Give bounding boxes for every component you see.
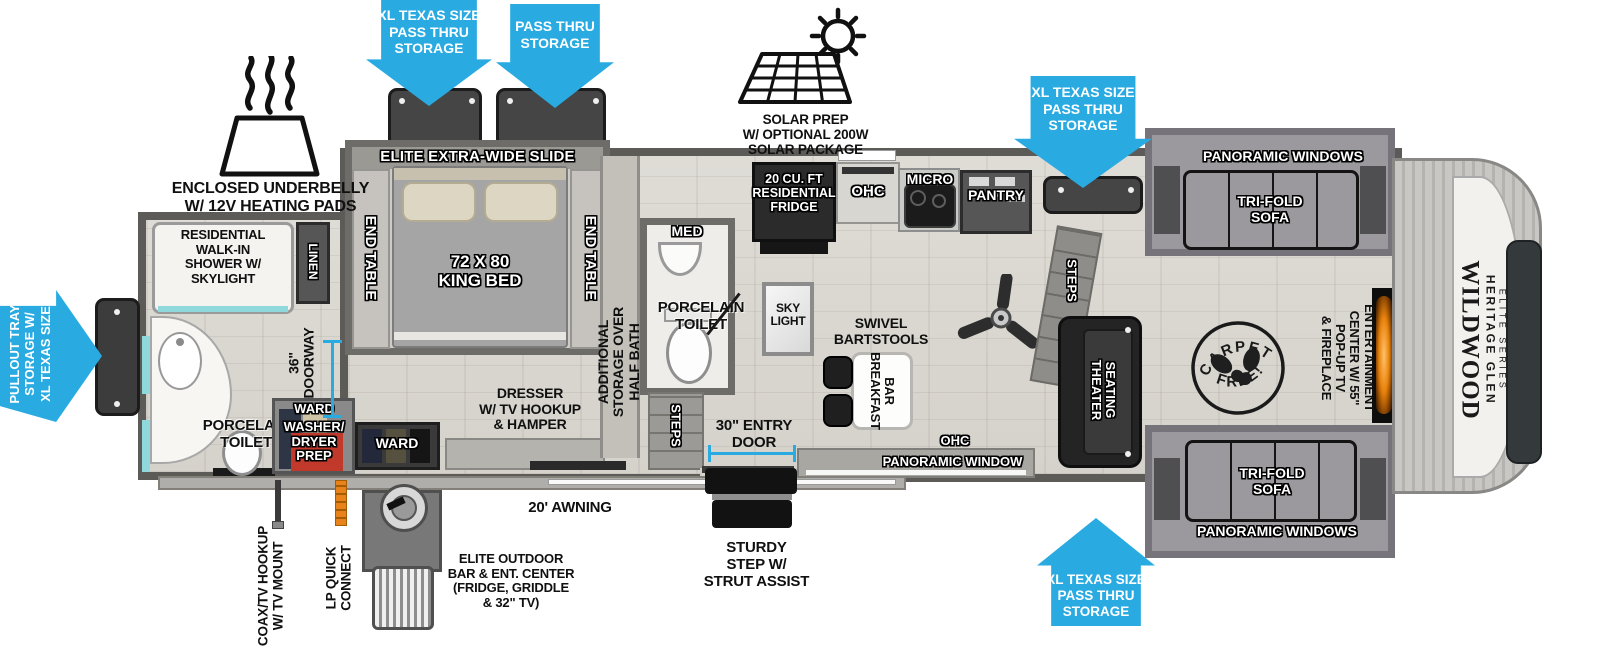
top-right-storage-door bbox=[1043, 176, 1143, 214]
doorway-measure-tick bbox=[323, 340, 342, 343]
logo-brand: WILDWOOD bbox=[1456, 260, 1484, 419]
pillow bbox=[484, 182, 558, 222]
ohc-shelf bbox=[842, 167, 894, 174]
logo-series: HERITAGE GLEN bbox=[1484, 275, 1497, 405]
washer-dryer-label: WASHER/ DRYER PREP bbox=[274, 420, 354, 464]
barstools-label: SWIVEL BARTSTOOLS bbox=[822, 316, 940, 347]
micro-label: MICRO bbox=[896, 172, 964, 188]
doorway-measure-line bbox=[331, 340, 334, 418]
ceiling-fan-icon bbox=[957, 274, 1045, 362]
bottom-ohc-label: OHC bbox=[915, 434, 995, 449]
lp-connector-icon bbox=[335, 480, 347, 526]
linen-label: LINEN bbox=[305, 219, 320, 304]
headboard bbox=[394, 168, 566, 180]
half-bath-steps-label: STEPS bbox=[668, 390, 683, 462]
additional-storage-label: ADDITIONAL STORAGE OVER HALF BATH bbox=[594, 237, 644, 487]
shower-label: RESIDENTIAL WALK-IN SHOWER W/ SKYLIGHT bbox=[156, 228, 290, 286]
lp-label: LP QUICK CONNECT bbox=[324, 531, 356, 626]
entry-measure-line bbox=[708, 452, 796, 455]
king-bed-label: 72 X 80 KING BED bbox=[400, 252, 560, 290]
floorplan-canvas: { "colors": { "arrow_blue": "#29ABE2", "… bbox=[0, 0, 1600, 651]
solar-prep-icon bbox=[732, 6, 877, 108]
heated-underbelly-icon bbox=[212, 56, 327, 178]
screw-dot bbox=[114, 309, 120, 315]
dresser-label: DRESSER W/ TV HOOKUP & HAMPER bbox=[440, 386, 620, 433]
outdoor-bar-label: ELITE OUTDOOR BAR & ENT. CENTER (FRIDGE,… bbox=[432, 552, 590, 610]
living-steps-label: STEPS bbox=[1064, 245, 1079, 317]
entry-measure-tick bbox=[793, 445, 796, 462]
slide-window bbox=[1154, 458, 1180, 520]
half-bath-toilet-label: PORCELAIN TOILET bbox=[646, 300, 756, 334]
skylight-label: SKY LIGHT bbox=[762, 302, 814, 329]
coax-label: COAX/TV HOOKUP W/ TV MOUNT bbox=[256, 519, 288, 654]
coax-cable-icon bbox=[275, 480, 281, 522]
entry-step-bottom bbox=[712, 500, 792, 528]
cap-dark-panel bbox=[1506, 240, 1542, 464]
ohc-label: OHC bbox=[836, 184, 900, 201]
fridge-label: 20 CU. FT RESIDENTIAL FRIDGE bbox=[752, 172, 836, 214]
barstool bbox=[823, 356, 853, 389]
slide-window bbox=[1360, 458, 1386, 520]
fridge-base bbox=[760, 242, 828, 254]
barstool bbox=[823, 394, 853, 427]
theater-seating-label: THEATERSEATING bbox=[1088, 328, 1118, 452]
sturdy-step-label: STURDY STEP W/ STRUT ASSIST bbox=[694, 540, 819, 590]
rear-storage-door bbox=[95, 298, 140, 416]
tri-fold-sofa-bottom-label: TRI-FOLD SOFA bbox=[1212, 466, 1332, 497]
doorway-measure-tick bbox=[323, 415, 342, 418]
entry-measure-tick bbox=[708, 445, 711, 462]
pillow bbox=[402, 182, 476, 222]
faucet-icon bbox=[176, 338, 184, 346]
bottom-window-glass bbox=[806, 470, 1026, 475]
slide-header-label: ELITE EXTRA-WIDE SLIDE bbox=[352, 149, 603, 166]
awning-label: 20' AWNING bbox=[510, 500, 630, 517]
slide-window bbox=[1360, 166, 1386, 234]
slide-window bbox=[1154, 166, 1180, 234]
towel-accent bbox=[142, 420, 150, 472]
outdoor-fridge-grill bbox=[372, 566, 434, 630]
arrow-left-storage-label: XL TEXAS SIZESTORAGE W/PULLOUT TRAY bbox=[6, 293, 54, 415]
logo-trim: ELITE SERIES bbox=[1497, 289, 1507, 392]
panoramic-windows-bottom-label: PANORAMIC WINDOWS bbox=[1182, 524, 1372, 540]
underbelly-label: ENCLOSED UNDERBELLY W/ 12V HEATING PADS bbox=[148, 180, 393, 216]
arrow-bottom-right: XL TEXAS SIZE PASS THRU STORAGE bbox=[1037, 518, 1155, 626]
towel-accent bbox=[142, 336, 150, 394]
brand-logo: WILDWOOD HERITAGE GLEN ELITE SERIES bbox=[1454, 233, 1510, 448]
shower-accent bbox=[158, 306, 288, 312]
breakfast-bar-label: BREAKFASTBAR bbox=[865, 347, 899, 435]
screw-dot bbox=[114, 401, 120, 407]
tri-fold-sofa-top-label: TRI-FOLD SOFA bbox=[1210, 194, 1330, 225]
med-label: MED bbox=[652, 224, 722, 240]
entry-step-top bbox=[705, 468, 797, 494]
front-ward-label: WARD bbox=[358, 436, 436, 452]
doorway-label: 36" DOORWAY bbox=[286, 316, 318, 411]
panoramic-window-label: PANORAMIC WINDOW bbox=[865, 455, 1040, 470]
solar-label: SOLAR PREP W/ OPTIONAL 200W SOLAR PACKAG… bbox=[718, 112, 893, 157]
bed-foot-strip bbox=[394, 332, 566, 340]
panoramic-windows-top-label: PANORAMIC WINDOWS bbox=[1188, 149, 1378, 165]
pantry-label: PANTRY bbox=[958, 188, 1034, 204]
entertainment-label: ENTERTAINMENT CENTER W/ 55" POP-UP TV & … bbox=[1318, 287, 1376, 429]
